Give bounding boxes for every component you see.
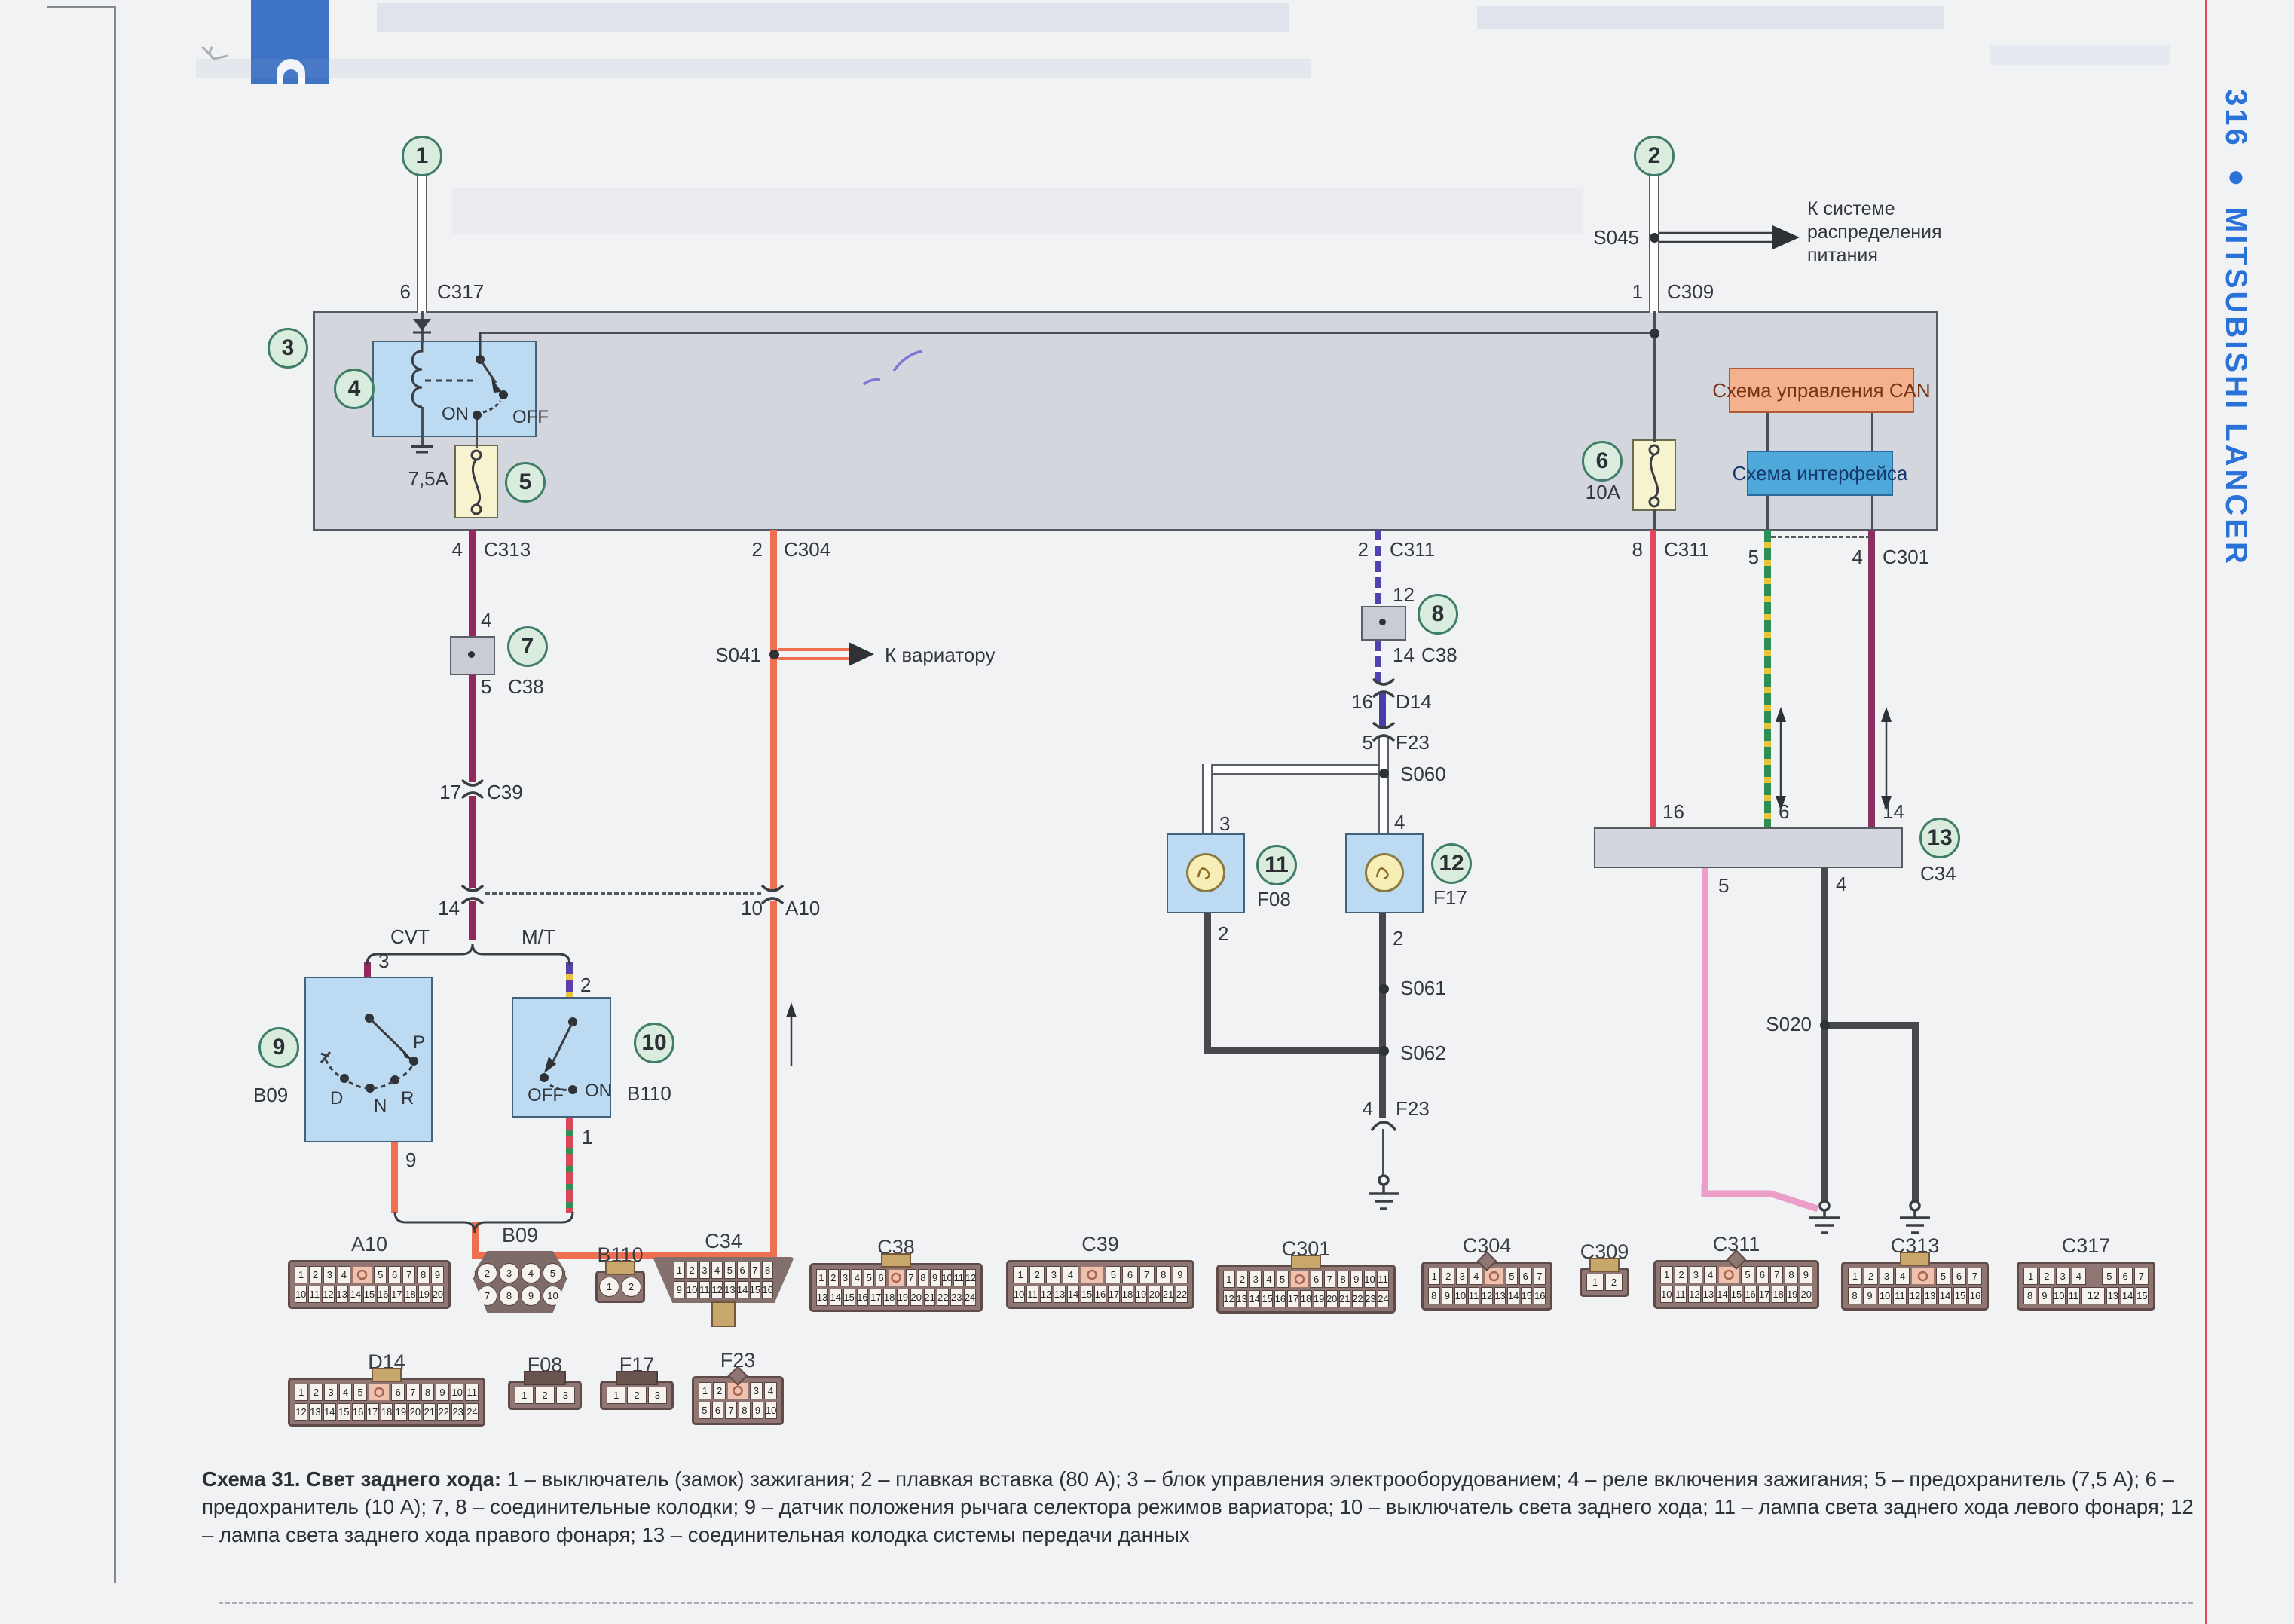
connector-pin-row: 12: [1586, 1274, 1623, 1291]
fuse5-rating: 7,5A: [408, 469, 449, 488]
pin-label: 3: [378, 951, 389, 971]
connector-key-tab: [1589, 1258, 1620, 1272]
pin-cell: 2: [2039, 1268, 2054, 1285]
connector-pinout-name: C39: [1006, 1233, 1194, 1256]
connector-pinout-body: 12345678910111213141516: [653, 1257, 794, 1303]
wire-switch-up: [770, 901, 777, 1258]
interface-label: Схема интерфейса: [1733, 463, 1908, 483]
pin-cell: 12: [1040, 1286, 1052, 1303]
pin-cell: 10: [1013, 1286, 1025, 1303]
pin-cell: 9: [1442, 1287, 1454, 1304]
pin-cell: 24: [1378, 1290, 1389, 1307]
pin-cell: 2: [477, 1263, 497, 1283]
splice-dot-s045: [1650, 233, 1659, 243]
pin-cell: 20: [1800, 1286, 1812, 1303]
pin-cell: 11: [1468, 1287, 1480, 1304]
pin-cell: 20: [1326, 1290, 1338, 1307]
splice-dot-s061: [1379, 984, 1389, 994]
pin-cell: 4: [2072, 1268, 2086, 1285]
pos-d-label: D: [330, 1090, 343, 1108]
pin-cell: 18: [883, 1289, 895, 1306]
pin-cell: 12: [711, 1281, 723, 1298]
connector-pinout-name: C317: [2017, 1234, 2155, 1258]
wire-can-5: [1764, 530, 1771, 830]
pin-cell: 14: [1716, 1286, 1729, 1303]
scan-bottom-artifact: [219, 1602, 2193, 1604]
wire-relay-bus: [480, 332, 1656, 334]
pin-cell: 23: [950, 1289, 962, 1306]
wire-c34-5-bend: [1705, 1183, 1818, 1209]
pin-cell: 2: [310, 1384, 323, 1401]
pin-label: 16: [1662, 802, 1684, 821]
pin-cell: 9: [752, 1402, 764, 1419]
pin-cell: 17: [366, 1403, 379, 1421]
pin-cell: 5: [724, 1262, 736, 1279]
pin-cell: 12: [1688, 1286, 1701, 1303]
connector-pin-row: 1234567: [2023, 1268, 2149, 1285]
splice-label: S045: [1593, 228, 1639, 247]
connector-pinout-body: 12345678910111213141516171819202122: [1006, 1260, 1194, 1309]
pin-cell: 5: [1277, 1271, 1289, 1288]
wire-c304: [770, 530, 777, 890]
callout-13: 13: [1919, 818, 1960, 858]
relay-off-label: OFF: [512, 408, 549, 427]
pin-cell: 6: [712, 1402, 724, 1419]
pin-cell: 15: [2136, 1287, 2149, 1304]
scan-smudge: [452, 188, 1583, 234]
connector-pinout-c301: C301123456789101112131415161718192021222…: [1216, 1265, 1396, 1314]
connector-key-tab: [605, 1261, 635, 1275]
caption-title: Схема 31. Свет заднего хода:: [202, 1467, 501, 1491]
pin-cell: 16: [1274, 1290, 1286, 1307]
pin-cell: 1: [599, 1277, 619, 1297]
pin-cell: 21: [924, 1289, 936, 1306]
sidebar-page-marker: 316 ● MITSUBISHI LANCER: [2219, 89, 2253, 567]
connector-pinout-body: 123456789101112131415161718192021222324: [288, 1378, 485, 1427]
splice-label: S061: [1400, 978, 1446, 998]
can-control-box: Схема управления CAN: [1729, 368, 1914, 413]
pos-p-label: P: [413, 1034, 425, 1052]
wire-a10-brace: [469, 901, 476, 940]
pin-cell: 7: [1534, 1268, 1546, 1285]
pin-cell: 5: [864, 1269, 874, 1286]
pin-label: 4: [452, 540, 463, 559]
pin-cell: 21: [423, 1403, 436, 1421]
fuse6-rating: 10A: [1586, 482, 1620, 502]
b110-off-label: OFF: [528, 1087, 564, 1105]
callout-8: 8: [1418, 594, 1458, 635]
pin-cell: 10: [1660, 1286, 1673, 1303]
wire-b09-out: [391, 1142, 398, 1213]
pin-cell: 15: [1730, 1286, 1743, 1303]
pin-cell: 15: [1262, 1290, 1273, 1307]
connector-key-tab: [881, 1253, 911, 1268]
pin-label: 5: [1718, 876, 1729, 895]
pin-cell: 1: [295, 1384, 308, 1401]
pin-cell: 6: [876, 1269, 886, 1286]
pin-cell: 2: [1675, 1266, 1687, 1283]
connector-pinout-f17: F17123: [600, 1381, 674, 1410]
connector-key-tab: [711, 1301, 736, 1327]
pin-cell: 8: [417, 1266, 430, 1283]
handwriting-mark: [202, 47, 228, 59]
pin-label: 2: [1393, 928, 1403, 948]
pin-cell: 13: [724, 1281, 736, 1298]
pin-cell: 13: [1494, 1287, 1506, 1304]
pin-cell: 18: [381, 1403, 393, 1421]
mt-label: M/T: [522, 927, 555, 947]
pin-cell: 23: [1365, 1290, 1376, 1307]
wire-c38a-c39: [469, 674, 476, 782]
pin-cell: 10: [687, 1281, 698, 1298]
wire-c311-2-lower: [1375, 641, 1381, 683]
pin-label: 3: [1219, 814, 1230, 833]
pin-cell: 16: [352, 1403, 365, 1421]
wire-d14-f23: [1379, 693, 1386, 728]
pin-cell: 9: [2038, 1287, 2051, 1304]
pin-cell: 6: [1311, 1271, 1323, 1288]
pin-cell: 1: [699, 1382, 711, 1399]
pin-cell: 5: [353, 1384, 367, 1401]
pin-label: 17: [439, 782, 461, 802]
note-to-power: К системе распределения питания: [1807, 197, 2012, 268]
pin-label: 9: [405, 1150, 416, 1170]
pin-cell: 4: [711, 1262, 723, 1279]
can-control-label: Схема управления CAN: [1712, 381, 1930, 400]
pin-cell: 12: [295, 1403, 307, 1421]
ground-icons: [1369, 1176, 1930, 1233]
pin-cell: 1: [1013, 1266, 1028, 1283]
callout-3: 3: [268, 328, 308, 369]
wire-c313: [469, 530, 476, 639]
pin-cell: 13: [1923, 1287, 1937, 1304]
key-cell: [1290, 1271, 1309, 1288]
pin-cell: 8: [1156, 1266, 1171, 1283]
wire-relay-to-fuse: [476, 419, 478, 448]
manual-page: 316 ● MITSUBISHI LANCER Схема управления…: [0, 0, 2294, 1624]
wire-f08-ground: [1204, 913, 1211, 1052]
pin-cell: 8: [1848, 1287, 1861, 1304]
pin-cell: 6: [2118, 1268, 2133, 1285]
pin-cell: 7: [725, 1402, 737, 1419]
pin-cell: 1: [515, 1387, 534, 1404]
pin-cell: 9: [930, 1269, 941, 1286]
pin-cell: 14: [1067, 1286, 1079, 1303]
pin-label: 2: [752, 540, 763, 559]
pin-cell: 9: [1863, 1287, 1876, 1304]
connector-pinout-body: 123456789101112131415161718192021222324: [1216, 1265, 1396, 1314]
pin-cell: 1: [455, 1263, 476, 1283]
joint-dot-c38a: [468, 651, 475, 658]
caption-body: 1 – выключатель (замок) зажигания; 2 – п…: [202, 1467, 2194, 1546]
callout-11: 11: [1256, 845, 1297, 885]
pin-cell: 14: [2121, 1287, 2133, 1304]
pin-cell: 5: [1506, 1268, 1518, 1285]
pin-cell: 9: [436, 1384, 449, 1401]
pin-cell: 6: [1519, 1268, 1531, 1285]
wire-f23-ground: [1382, 1129, 1384, 1176]
pin-cell: 13: [1702, 1286, 1715, 1303]
pin-cell: 11: [1893, 1287, 1907, 1304]
connector-pinout-d14: D141234567891011121314151617181920212223…: [288, 1378, 485, 1427]
figure-caption: Схема 31. Свет заднего хода: 1 – выключа…: [202, 1465, 2195, 1549]
pin-cell: 9: [1173, 1266, 1188, 1283]
pin-cell: 7: [1324, 1271, 1336, 1288]
connector-key-tab: [372, 1368, 402, 1382]
pin-cell: 4: [1895, 1268, 1910, 1285]
pin-cell: 19: [418, 1286, 430, 1303]
connector-label: F23: [1396, 732, 1430, 752]
pin-cell: 8: [2023, 1287, 2036, 1304]
pin-cell: 8: [1428, 1287, 1440, 1304]
pin-label: 4: [1363, 1099, 1373, 1118]
arrow-to-power: [1659, 225, 1800, 249]
pin-cell: 7: [2134, 1268, 2149, 1285]
connector-pin-row: 8910111213141516: [1428, 1287, 1546, 1304]
pin-cell: 5: [699, 1402, 711, 1419]
callout-1: 1: [402, 136, 442, 176]
pin-cell: 19: [1786, 1286, 1799, 1303]
connector-pinout-body: 12: [595, 1271, 645, 1303]
pin-cell: 3: [648, 1387, 667, 1404]
connector-pin-row: 1011121314151617181920: [1660, 1286, 1812, 1303]
pin-cell: 11: [953, 1269, 964, 1286]
pin-cell: 4: [1704, 1266, 1717, 1283]
wire-c39-a10: [469, 796, 476, 888]
pin-cell: 18: [1772, 1286, 1785, 1303]
pin-cell: 10: [2053, 1287, 2066, 1304]
key-cell: [369, 1384, 390, 1401]
connector-pinout-c317: C317123456789101112131415: [2017, 1262, 2155, 1311]
component-label: B110: [627, 1084, 671, 1103]
pin-cell: 23: [451, 1403, 464, 1421]
callout-9: 9: [258, 1027, 299, 1068]
pin-cell: 1: [674, 1262, 685, 1279]
connector-pin-row: 123456789101112: [816, 1269, 976, 1286]
pin-cell: 7: [1770, 1266, 1783, 1283]
connector-pinout-f23: F2312345678910: [692, 1376, 784, 1425]
pin-cell: 8: [499, 1286, 519, 1306]
pin-cell: 17: [870, 1289, 882, 1306]
connector-label: D14: [1396, 692, 1432, 711]
pin-cell: 1: [295, 1266, 307, 1283]
bulb-icon-f17: [1365, 853, 1404, 892]
pin-cell: 10: [1878, 1287, 1892, 1304]
connector-label: C317: [437, 282, 484, 301]
connector-pinout-b09: B0912345678910: [472, 1251, 568, 1313]
pin-cell: 12: [1481, 1287, 1493, 1304]
pin-cell: 16: [1094, 1286, 1106, 1303]
connector-label: C304: [784, 540, 830, 559]
connector-pin-row: 123: [607, 1387, 667, 1404]
dashed-c301-link: [1771, 536, 1870, 538]
pin-cell: 1: [607, 1387, 625, 1404]
pin-cell: 8: [762, 1262, 773, 1279]
connector-pinout-f08: F08123: [508, 1381, 582, 1410]
connector-pin-row: 123456789: [1013, 1266, 1188, 1283]
pin-cell: 16: [857, 1289, 869, 1306]
callout-12: 12: [1431, 843, 1472, 884]
pin-label: 14: [438, 898, 460, 918]
pin-cell: 9: [1800, 1266, 1812, 1283]
pin-cell: 5: [1936, 1268, 1950, 1285]
joint-dot-c38b: [1379, 619, 1386, 625]
connector-pin-row: 1011121314151617181920: [295, 1286, 444, 1303]
pin-label: 4: [1852, 547, 1863, 567]
pin-cell: 15: [338, 1403, 350, 1421]
selector-switch-b09: [304, 977, 433, 1142]
pin-cell: 19: [1135, 1286, 1147, 1303]
pin-cell: 3: [1880, 1268, 1894, 1285]
cvt-label: CVT: [390, 927, 430, 947]
note-to-variator: К вариатору: [885, 645, 995, 665]
pin-cell: 5: [1741, 1266, 1754, 1283]
pin-cell: 13: [816, 1289, 828, 1306]
key-cell: [888, 1269, 904, 1286]
pin-cell: 2: [828, 1269, 839, 1286]
connector-pin-row: 10111213141516171819202122: [1013, 1286, 1188, 1303]
pin-cell: 3: [1249, 1271, 1262, 1288]
pin-cell: 15: [363, 1286, 375, 1303]
pin-label: 5: [1748, 547, 1759, 567]
pin-cell: 7: [1968, 1268, 1982, 1285]
data-link-connector-c34: [1594, 827, 1903, 868]
pin-cell: 6: [737, 1262, 748, 1279]
pin-label: 2: [1218, 924, 1228, 944]
connector-pin-row: 123456: [484, 1263, 556, 1283]
pin-cell: 13: [2106, 1287, 2119, 1304]
pin-cell: 11: [1377, 1271, 1389, 1288]
pos-n-label: N: [374, 1097, 387, 1115]
wire-lamp-feed-left: [1202, 764, 1213, 836]
key-cell: [1080, 1266, 1105, 1283]
pin-cell: 10: [295, 1286, 307, 1303]
pin-cell: 10: [543, 1286, 563, 1306]
connector-pinout-name: B09: [472, 1224, 568, 1247]
splice-label: S041: [715, 645, 761, 665]
pin-cell: 3: [324, 1384, 338, 1401]
pin-cell: 7: [402, 1266, 415, 1283]
wire-c301-4: [1868, 530, 1875, 830]
relay-on-label: ON: [442, 405, 469, 424]
pin-cell: 1: [816, 1269, 827, 1286]
pin-cell: 21: [1162, 1286, 1174, 1303]
pin-cell: 2: [309, 1266, 322, 1283]
pin-cell: 15: [1081, 1286, 1093, 1303]
connector-label: C39: [487, 782, 523, 802]
wire-f08-ground-h: [1204, 1047, 1387, 1054]
pin-cell: 17: [1758, 1286, 1771, 1303]
pin-label: 10: [741, 898, 763, 918]
pin-cell: 18: [404, 1286, 416, 1303]
pin-cell: 6: [1952, 1268, 1966, 1285]
pin-cell: 2: [1237, 1271, 1249, 1288]
pin-cell: 7: [750, 1262, 761, 1279]
connector-pin-row: 5678910: [699, 1402, 777, 1419]
component-label: B09: [253, 1085, 288, 1105]
pin-cell: 22: [937, 1289, 949, 1306]
callout-2: 2: [1634, 136, 1675, 176]
connector-key-tab: [616, 1371, 658, 1385]
wire-c34-4: [1821, 868, 1828, 1201]
control-unit-box: [313, 311, 1938, 531]
wire-fusible-link: [1649, 176, 1659, 313]
connector-pin-row: 123456789: [295, 1266, 444, 1283]
pin-cell: 9: [674, 1281, 685, 1298]
connector-label: F23: [1396, 1099, 1430, 1118]
connector-pin-row: 1234567: [1848, 1268, 1982, 1285]
callout-6: 6: [1582, 441, 1623, 482]
pin-cell: 2: [687, 1262, 698, 1279]
interface-box: Схема интерфейса: [1747, 451, 1893, 496]
pin-cell: 18: [1121, 1286, 1133, 1303]
pin-cell: 3: [750, 1382, 763, 1399]
callout-4: 4: [334, 369, 375, 409]
connector-pin-row: 78910: [484, 1286, 556, 1306]
pin-cell: 2: [1864, 1268, 1878, 1285]
pin-cell: 3: [323, 1266, 336, 1283]
scan-smudge: [377, 3, 1289, 32]
connector-label: C301: [1883, 547, 1929, 567]
pin-cell: 9: [431, 1266, 444, 1283]
pin-cell: 14: [737, 1281, 748, 1298]
pin-cell: 4: [339, 1384, 353, 1401]
pin-label: 2: [1358, 540, 1369, 559]
pin-cell: 19: [897, 1289, 909, 1306]
wire-f17-ground: [1379, 913, 1386, 1118]
pin-cell: 3: [699, 1262, 711, 1279]
pin-cell: 14: [1507, 1287, 1519, 1304]
connector-key-tab: [524, 1371, 566, 1385]
pin-cell: 4: [1470, 1268, 1482, 1285]
pin-cell: 15: [750, 1281, 761, 1298]
arrow-to-variator: [778, 642, 874, 666]
connector-pin-row: 12131415161718192021222324: [1223, 1290, 1389, 1307]
pin-cell: 15: [1521, 1287, 1533, 1304]
connector-pinout-name: A10: [288, 1233, 451, 1256]
pin-label: 8: [1632, 540, 1643, 559]
pin-cell: 10: [1364, 1271, 1376, 1288]
pin-cell: 8: [918, 1269, 928, 1286]
pin-cell: 19: [394, 1403, 407, 1421]
wire-s020-branch-h: [1824, 1022, 1919, 1029]
pin-cell: 20: [432, 1286, 444, 1303]
connector-pinout-body: 123456789101112131415: [2017, 1262, 2155, 1311]
bulb-icon-f08: [1186, 853, 1225, 892]
pin-label: 16: [1351, 692, 1373, 711]
splice-dot-s062: [1379, 1046, 1389, 1056]
pin-cell: 17: [1108, 1286, 1120, 1303]
pin-label: 4: [1836, 874, 1846, 894]
pin-cell: 15: [1953, 1287, 1967, 1304]
connector-pin-row: 89101112131415: [2023, 1287, 2149, 1304]
pin-cell: 7: [906, 1269, 916, 1286]
connector-pinout-body: 1234567891011121314151617181920: [288, 1260, 451, 1309]
connector-label: A10: [785, 898, 820, 918]
key-cell: [352, 1266, 372, 1283]
pin-cell: 4: [764, 1382, 777, 1399]
connector-pinout-c304: C30412345678910111213141516: [1421, 1262, 1552, 1311]
callout-10: 10: [634, 1023, 674, 1063]
connector-pinout-c309: C30912: [1580, 1268, 1629, 1297]
pin-cell: 14: [350, 1286, 362, 1303]
wire-coil-ground: [421, 407, 424, 446]
pin-cell: 22: [437, 1403, 450, 1421]
wire-c317-internal: [421, 311, 424, 343]
pin-cell: 6: [1122, 1266, 1137, 1283]
pin-cell: 12: [1908, 1287, 1922, 1304]
pin-cell: 22: [1176, 1286, 1188, 1303]
